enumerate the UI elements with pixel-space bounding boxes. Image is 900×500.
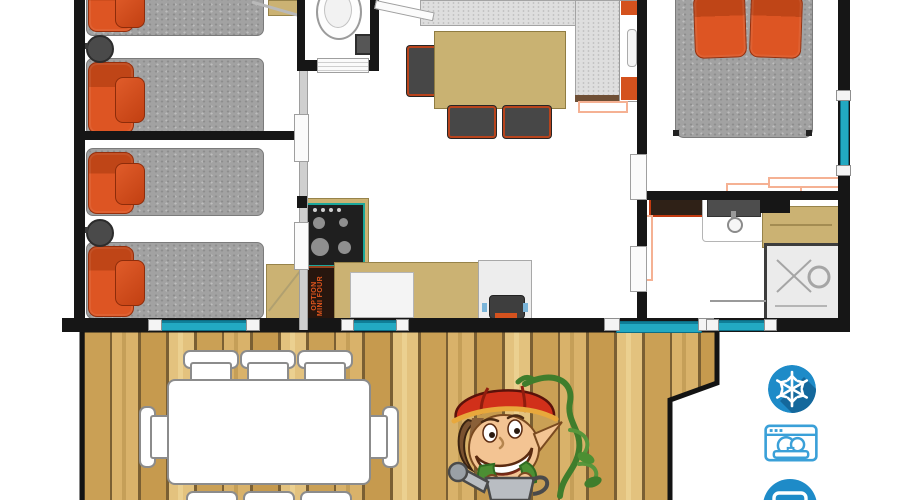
wall-bedroom-divider [74,131,302,140]
bench-handle [627,29,637,67]
patio-chair-back [300,491,352,500]
cooktop-knob [337,208,341,212]
bed-foot [673,130,679,136]
cooktop-knob [313,208,317,212]
kitchen-sink [350,272,414,318]
bed-foot [806,130,812,136]
window [840,98,849,168]
patio-chair-back [186,491,238,500]
window [158,320,250,331]
wall-living [637,0,647,158]
bedside-stool [86,35,114,63]
burner [339,218,348,227]
cooktop-knob [321,208,325,212]
window [351,320,400,331]
bathroom-door [630,246,647,292]
heater [768,177,846,188]
wall-bed-bath [645,191,845,200]
deck-table [167,379,371,485]
dining-table [434,31,566,109]
window-cap [764,319,777,331]
wall-junction [297,196,307,208]
cooktop [303,203,365,267]
bedroom-door [630,154,647,200]
wall-living [637,196,647,250]
pillow [115,0,145,28]
gardener-elf-mascot [430,370,618,500]
burner [313,217,325,229]
wall-left [74,0,85,332]
window-cap [706,319,719,331]
faucet [727,217,743,233]
window-cap [836,165,851,176]
wall-bath-stub [760,191,790,213]
option-label-line2: MINI FOUR [318,268,324,324]
dishwasher-icon [764,420,818,466]
burner [338,241,351,254]
dining-chair [448,106,496,138]
tv-icon [762,478,818,500]
counter-top [420,0,579,26]
shower-head [809,267,829,287]
bathroom-sink-unit [702,194,764,242]
burner [311,238,329,256]
shower [764,243,848,326]
window-cap [148,319,162,331]
cooktop-knob [329,208,333,212]
window-cap [341,319,354,331]
shower-door-track [710,300,766,302]
air-conditioning-icon [768,365,816,413]
watering-can [486,478,534,500]
dining-chair [503,106,551,138]
window [716,320,768,331]
sliding-glass-door [616,321,702,333]
heater [578,101,628,113]
fridge-mark [523,303,528,312]
pillow [749,0,803,59]
window-cap [246,319,260,331]
bedside-stool [86,219,114,247]
bedroom-door [294,222,309,270]
bedroom-door [294,114,309,162]
wall-wc-bottom [297,60,319,71]
window-cap [836,90,851,101]
window-cap [396,319,409,331]
floor-plan: OPTION MINI FOUR [0,0,900,500]
counter-side [575,0,625,100]
fridge [478,260,532,322]
pillow [115,77,145,123]
wc-sliding-door [317,58,369,73]
fridge-mark [482,303,487,312]
pillow [115,260,145,306]
pillow [693,0,747,59]
pillow [115,163,145,205]
counter-line [770,224,832,226]
wall-living [637,288,647,320]
patio-chair-back [243,491,295,500]
window-cap [604,318,620,331]
